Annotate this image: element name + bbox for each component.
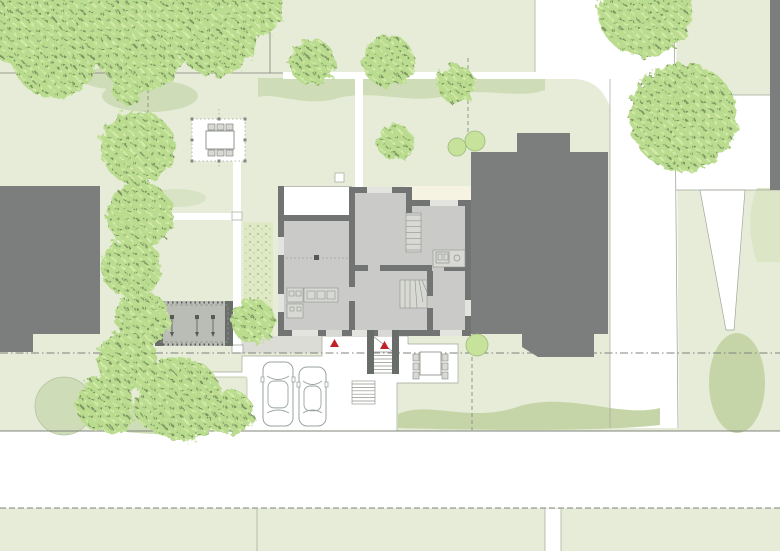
site-plan-viewport <box>0 0 780 551</box>
window <box>292 330 318 336</box>
road-side <box>610 0 679 428</box>
tree-row-west-texture <box>101 237 161 297</box>
garden-feature-marker <box>335 173 344 182</box>
tree-small <box>466 334 488 356</box>
door-gap <box>368 265 380 271</box>
deck-tick <box>191 118 194 121</box>
shrub-verge-texture <box>134 384 180 430</box>
tree-row-west <box>101 237 161 297</box>
shrub-verge <box>134 384 180 430</box>
tree-grove-northwest-texture <box>98 8 182 92</box>
carport-post <box>195 315 199 319</box>
terrace-chair <box>413 354 419 361</box>
tree-garden-north-texture <box>362 35 414 87</box>
door-gap <box>378 330 394 336</box>
shrub-arc <box>750 188 780 262</box>
deck-table <box>206 131 234 149</box>
tree-texture <box>113 75 143 105</box>
deck-chair <box>226 124 233 130</box>
deck-chair <box>226 150 233 156</box>
window <box>278 294 284 312</box>
kitchen-counter-west <box>287 288 303 302</box>
tree-garden-texture <box>377 124 413 160</box>
tree-bed-south-texture <box>231 299 275 343</box>
entrance-stair-wall <box>392 330 399 374</box>
tree-garden-north <box>289 39 335 85</box>
column <box>314 255 319 260</box>
stair-winder <box>400 280 427 308</box>
tree-roadside <box>629 63 737 171</box>
terrace-table-east <box>420 352 441 375</box>
building-neighbor-east-bump <box>517 133 570 153</box>
deck-tick <box>191 139 194 142</box>
shrub-verge-texture <box>93 394 133 434</box>
building-edge-sliver <box>770 0 780 190</box>
tree-garden-north-texture <box>289 39 335 85</box>
tree-grove-northwest <box>11 10 99 98</box>
shrub-verge <box>180 397 220 437</box>
wall <box>349 268 355 336</box>
shrub-patch <box>709 333 765 433</box>
parked-car <box>297 367 328 426</box>
door-gap <box>326 330 342 336</box>
road-main <box>0 431 780 508</box>
tree-grove-northwest-texture <box>11 10 99 98</box>
wall <box>349 187 355 268</box>
tree-small <box>465 131 485 151</box>
basement-stair <box>352 381 375 404</box>
deck-tick <box>244 160 247 163</box>
carport-post <box>170 315 174 319</box>
car-mirror <box>261 377 264 382</box>
house-north-terrace-east <box>405 186 471 201</box>
shrub-verge <box>225 397 255 427</box>
building-neighbor-east <box>471 152 608 334</box>
tree-roadside-texture <box>629 63 737 171</box>
deck-chair <box>217 124 224 130</box>
terrace-chair <box>413 363 419 370</box>
terrace-chair <box>442 372 448 379</box>
wall <box>278 186 284 336</box>
door-gap <box>427 296 433 308</box>
deck-tick <box>218 160 221 163</box>
gate-marker <box>232 345 243 353</box>
deck-tick <box>244 118 247 121</box>
floor-north-room <box>355 193 406 265</box>
tree-texture <box>101 111 175 185</box>
terrace-chair <box>413 372 419 379</box>
tree-bed-south <box>231 299 275 343</box>
building-neighbor-east-annex <box>522 334 594 357</box>
path-junction-marker <box>232 212 242 220</box>
shrub-verge <box>93 394 133 434</box>
building-neighbor-west-annex <box>0 334 33 352</box>
entrance-stair-wall <box>367 330 374 374</box>
floor-stair-landing <box>406 252 421 265</box>
building-neighbor-west <box>0 186 100 334</box>
car-mirror <box>325 382 328 387</box>
deck-tick <box>244 139 247 142</box>
wall <box>278 215 352 221</box>
tree-row-west-texture <box>107 182 173 248</box>
carport-post <box>211 315 215 319</box>
deck-tick <box>191 160 194 163</box>
window <box>430 200 458 206</box>
parked-car <box>261 362 295 426</box>
deck-chair <box>217 150 224 156</box>
car-mirror <box>292 377 295 382</box>
deck-chair <box>208 150 215 156</box>
tree-garden-north <box>437 65 475 103</box>
tree-garden-north-texture <box>437 65 475 103</box>
terrace-chair <box>442 354 448 361</box>
deck-chair <box>208 124 215 130</box>
deck-tick <box>218 118 221 121</box>
tree-garden-north <box>362 35 414 87</box>
tree <box>113 75 143 105</box>
site-plan-canvas <box>0 0 780 551</box>
house-north-terrace <box>283 186 352 215</box>
shrub-verge-texture <box>225 397 255 427</box>
window <box>278 237 284 255</box>
door-gap <box>349 287 355 301</box>
shrub-verge-texture <box>180 397 220 437</box>
window <box>465 300 471 316</box>
window <box>367 187 392 193</box>
car-body <box>299 367 326 426</box>
floor-east-south-room <box>433 271 465 330</box>
tree <box>101 111 175 185</box>
car-mirror <box>297 382 300 387</box>
tree-small <box>448 138 466 156</box>
window <box>440 330 462 336</box>
tree-row-west <box>107 182 173 248</box>
garden-path-vertical <box>355 79 363 187</box>
entrance-stair-treads <box>374 352 392 373</box>
kitchen-counter-west2 <box>304 288 338 302</box>
verge-strip-gap <box>545 509 561 551</box>
tree-grove-northwest <box>98 8 182 92</box>
terrace-chair <box>442 363 448 370</box>
car-body <box>263 362 293 426</box>
tree-garden <box>377 124 413 160</box>
